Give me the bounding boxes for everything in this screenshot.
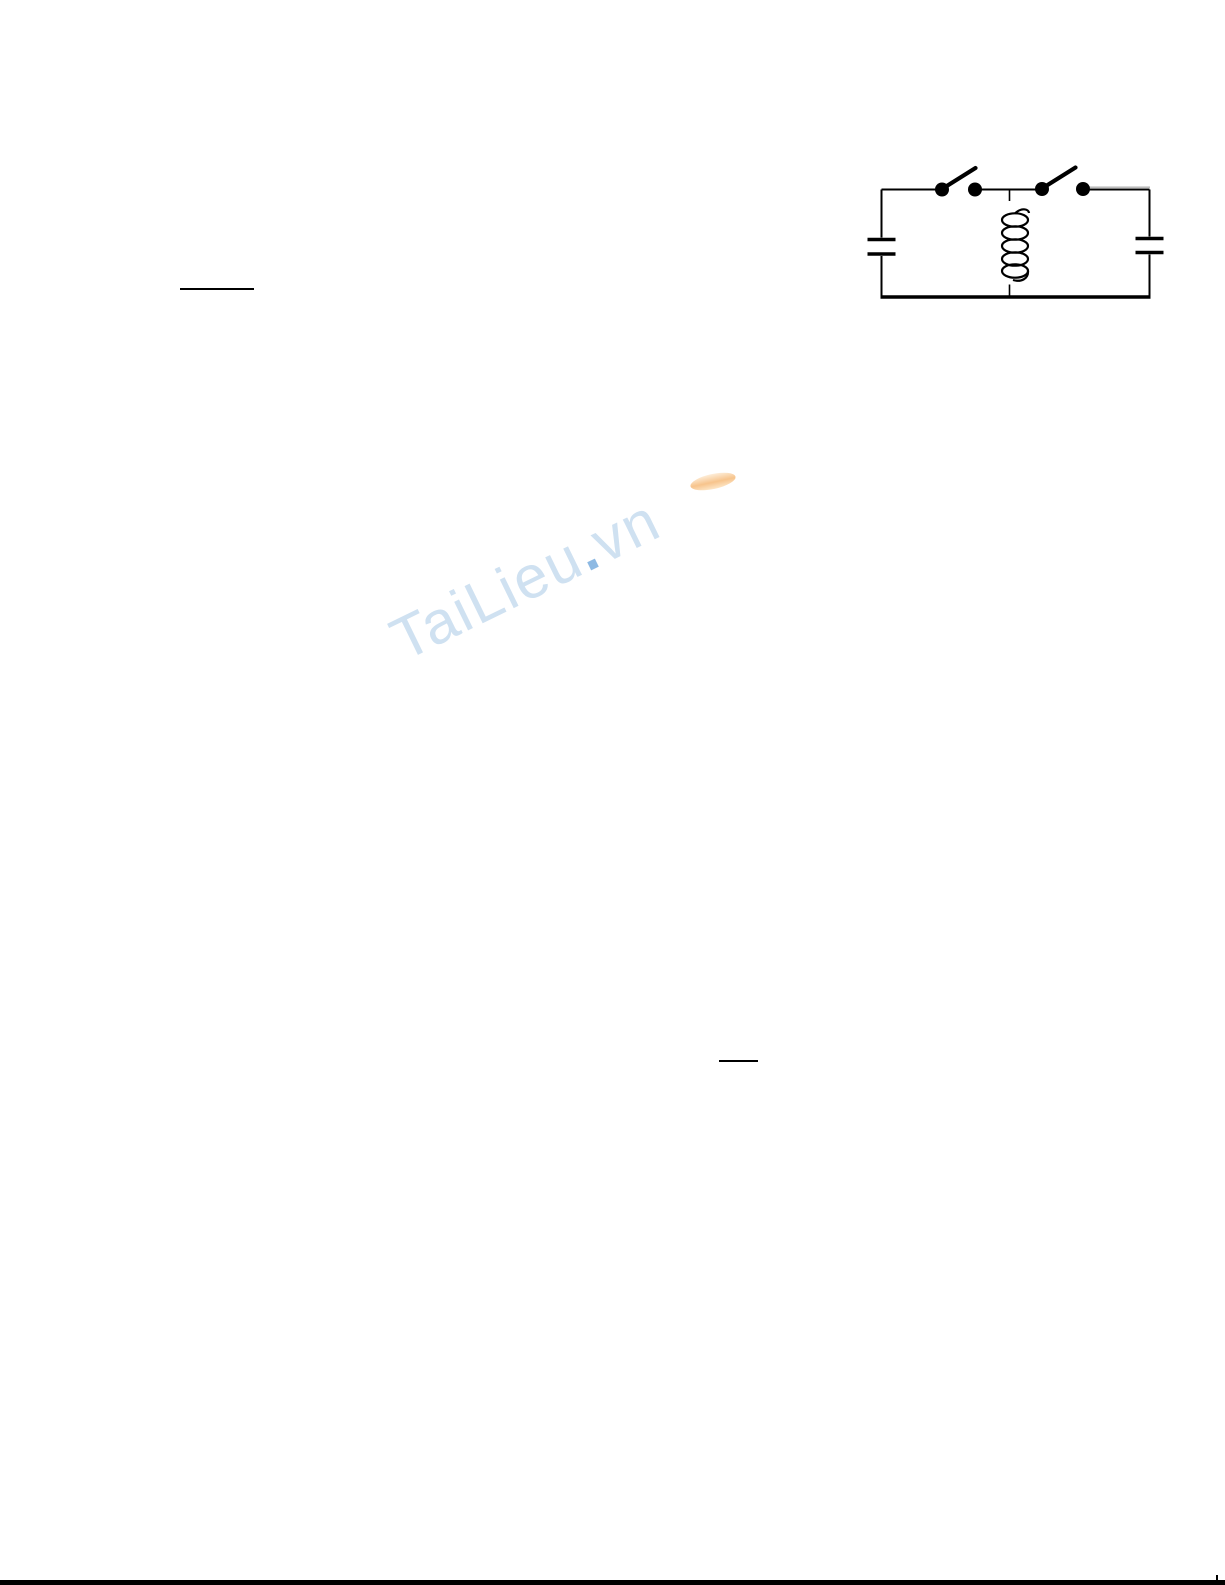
watermark-text-suffix: vn [581,486,671,576]
watermark-text-main: TaiLieu [380,524,593,674]
capacitor-left-icon [868,190,896,298]
switch-left-icon [935,168,982,197]
page-bottom-bar [0,1580,1225,1585]
inductor-icon [1002,209,1029,280]
document-page: TaiLieu.vn [0,0,1225,1585]
fraction-bar [180,288,254,290]
switch-right-icon [1035,168,1090,197]
capacitor-right-icon [1136,190,1164,298]
watermark-dot: . [564,515,610,583]
circuit-diagram [850,150,1170,320]
watermark: TaiLieu.vn [380,485,671,674]
watermark-swoosh-icon [689,469,737,493]
fraction-bar [719,1060,758,1062]
page-bottom-tick [1216,1575,1218,1581]
